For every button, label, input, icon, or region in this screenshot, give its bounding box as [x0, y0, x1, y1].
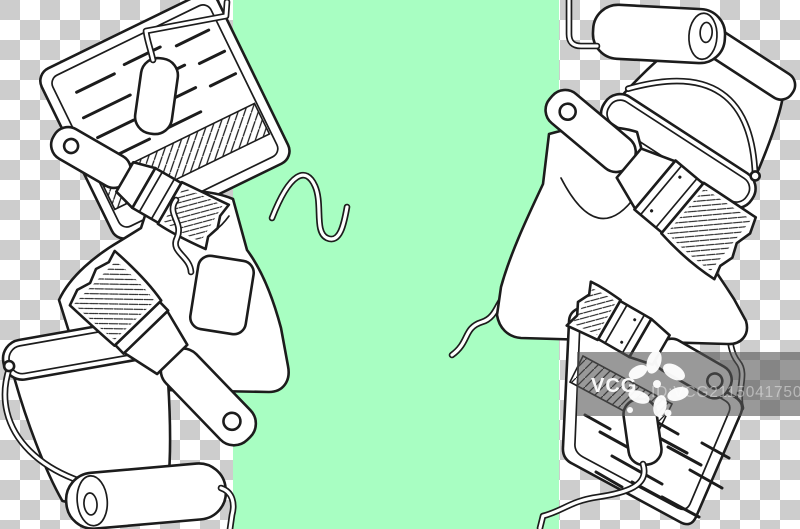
stock-image-preview: ID:VCG211504175034 VCG	[0, 0, 800, 529]
apron-pocket	[189, 254, 256, 336]
watermark: ID:VCG211504175034 VCG	[577, 348, 800, 418]
illustration-canvas: ID:VCG211504175034 VCG	[0, 0, 800, 529]
